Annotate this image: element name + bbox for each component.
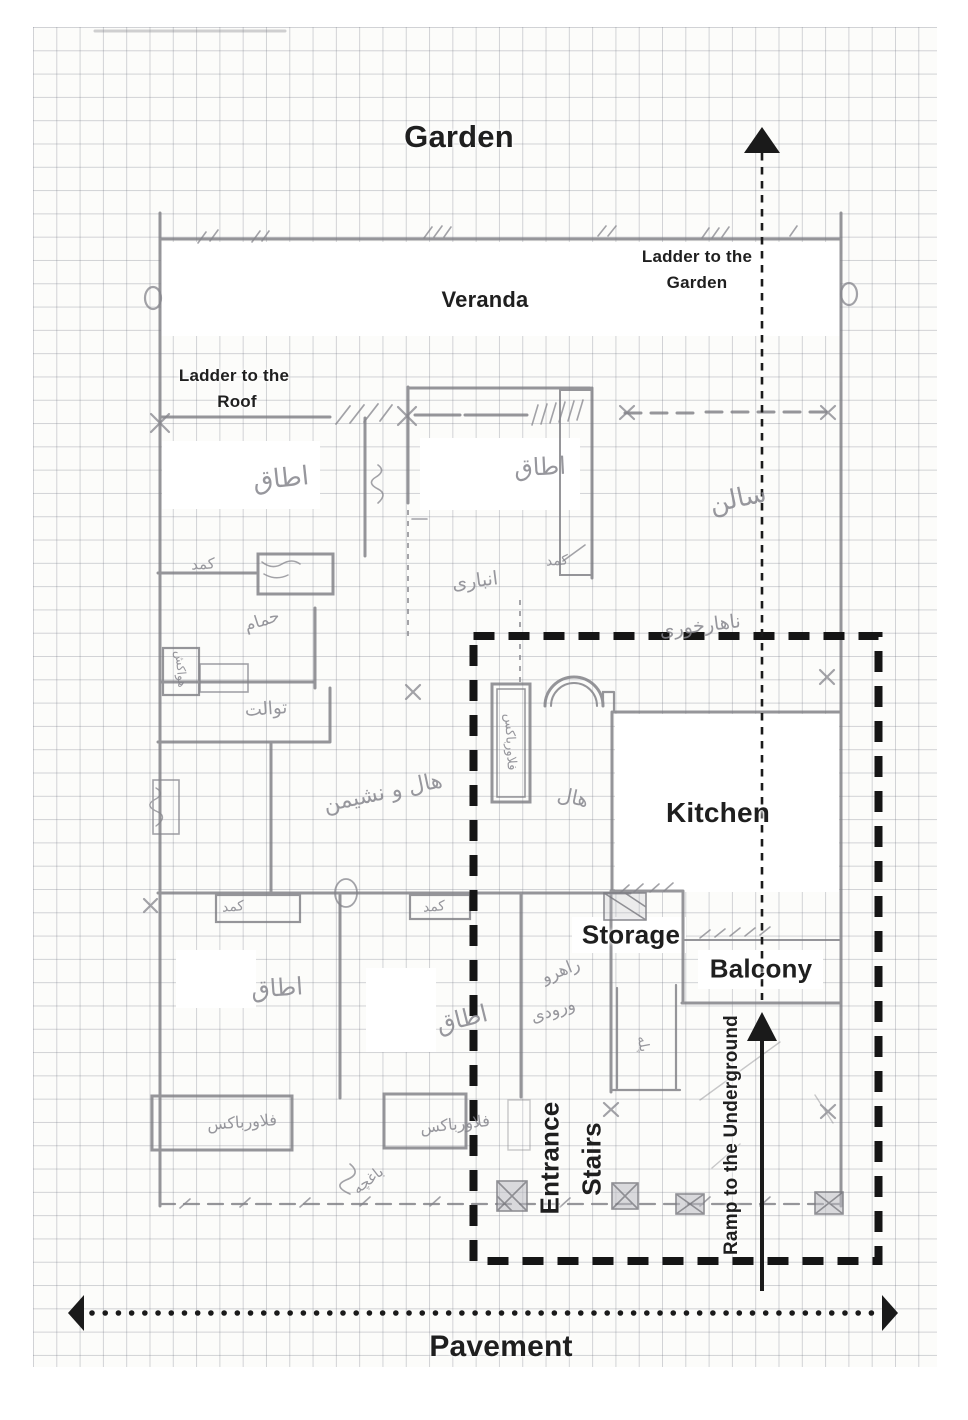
ladder-to-roof-label-line2: Roof (217, 392, 257, 412)
x-mark (406, 685, 420, 699)
room-label-fa: اطاق (250, 972, 304, 1004)
ladder-to-roof-label-line1: Ladder to the (179, 366, 289, 386)
hatch-ticks (336, 404, 392, 424)
closet-box-1 (258, 554, 333, 594)
door-landing (604, 893, 646, 920)
column-square (612, 1183, 638, 1209)
scribble (262, 561, 300, 578)
stairs-label: Stairs (577, 1122, 608, 1195)
scribble (700, 1042, 833, 1168)
balcony-label: Balcony (710, 954, 813, 985)
x-mark (144, 899, 157, 912)
garden-label: Garden (404, 119, 514, 155)
scribble (371, 465, 383, 503)
kitchen-label: Kitchen (666, 797, 770, 829)
x-mark (820, 670, 834, 684)
toilet-label-fa: توالت (244, 697, 288, 721)
hatch-ticks (700, 927, 770, 938)
hole-circle-right (841, 283, 857, 305)
arch-step (603, 692, 614, 712)
entrance-label: Entrance (535, 1102, 566, 1215)
closet-label-fa: کمد (191, 554, 216, 573)
ramp-arrow-head-icon (747, 1012, 777, 1041)
arch-inner (551, 683, 597, 706)
column-square (497, 1181, 527, 1211)
closet-label-fa: کمد (221, 898, 244, 916)
flowerbox-label-fa: فلاورباکس (501, 713, 519, 771)
floor-plan-sketch (0, 0, 968, 1420)
pavement-arrow-left-icon (68, 1295, 84, 1331)
column-square (676, 1194, 704, 1214)
veranda-label: Veranda (441, 287, 528, 313)
arch-outer (545, 677, 603, 706)
hatch-ticks (532, 400, 583, 425)
closet-label-fa: کمد (546, 552, 569, 569)
ramp-to-underground-label: Ramp to the Underground (721, 1015, 743, 1255)
garden-arrow-icon (744, 127, 780, 153)
pavement-arrow-right-icon (882, 1295, 898, 1331)
pavement-label: Pavement (429, 1330, 572, 1364)
room-label-fa: اطاق (252, 461, 311, 497)
house-top-wall-dashed (625, 412, 835, 413)
ladder-to-garden-label-line2: Garden (667, 273, 728, 293)
ladder-to-garden-label-line1: Ladder to the (642, 247, 752, 267)
small-box (508, 1100, 530, 1150)
room-label-fa: اطاق (513, 452, 566, 483)
stairs-label-fa: پله (634, 1035, 653, 1054)
pencil-dashed-walls (408, 510, 520, 688)
closet-label-fa: کمد (422, 898, 445, 916)
column-square (815, 1192, 843, 1214)
storage-label: Storage (582, 920, 680, 951)
floor-plan-page: Garden Veranda Ladder to the Garden Ladd… (0, 0, 968, 1420)
x-mark (604, 1103, 618, 1116)
small-box (200, 664, 248, 692)
